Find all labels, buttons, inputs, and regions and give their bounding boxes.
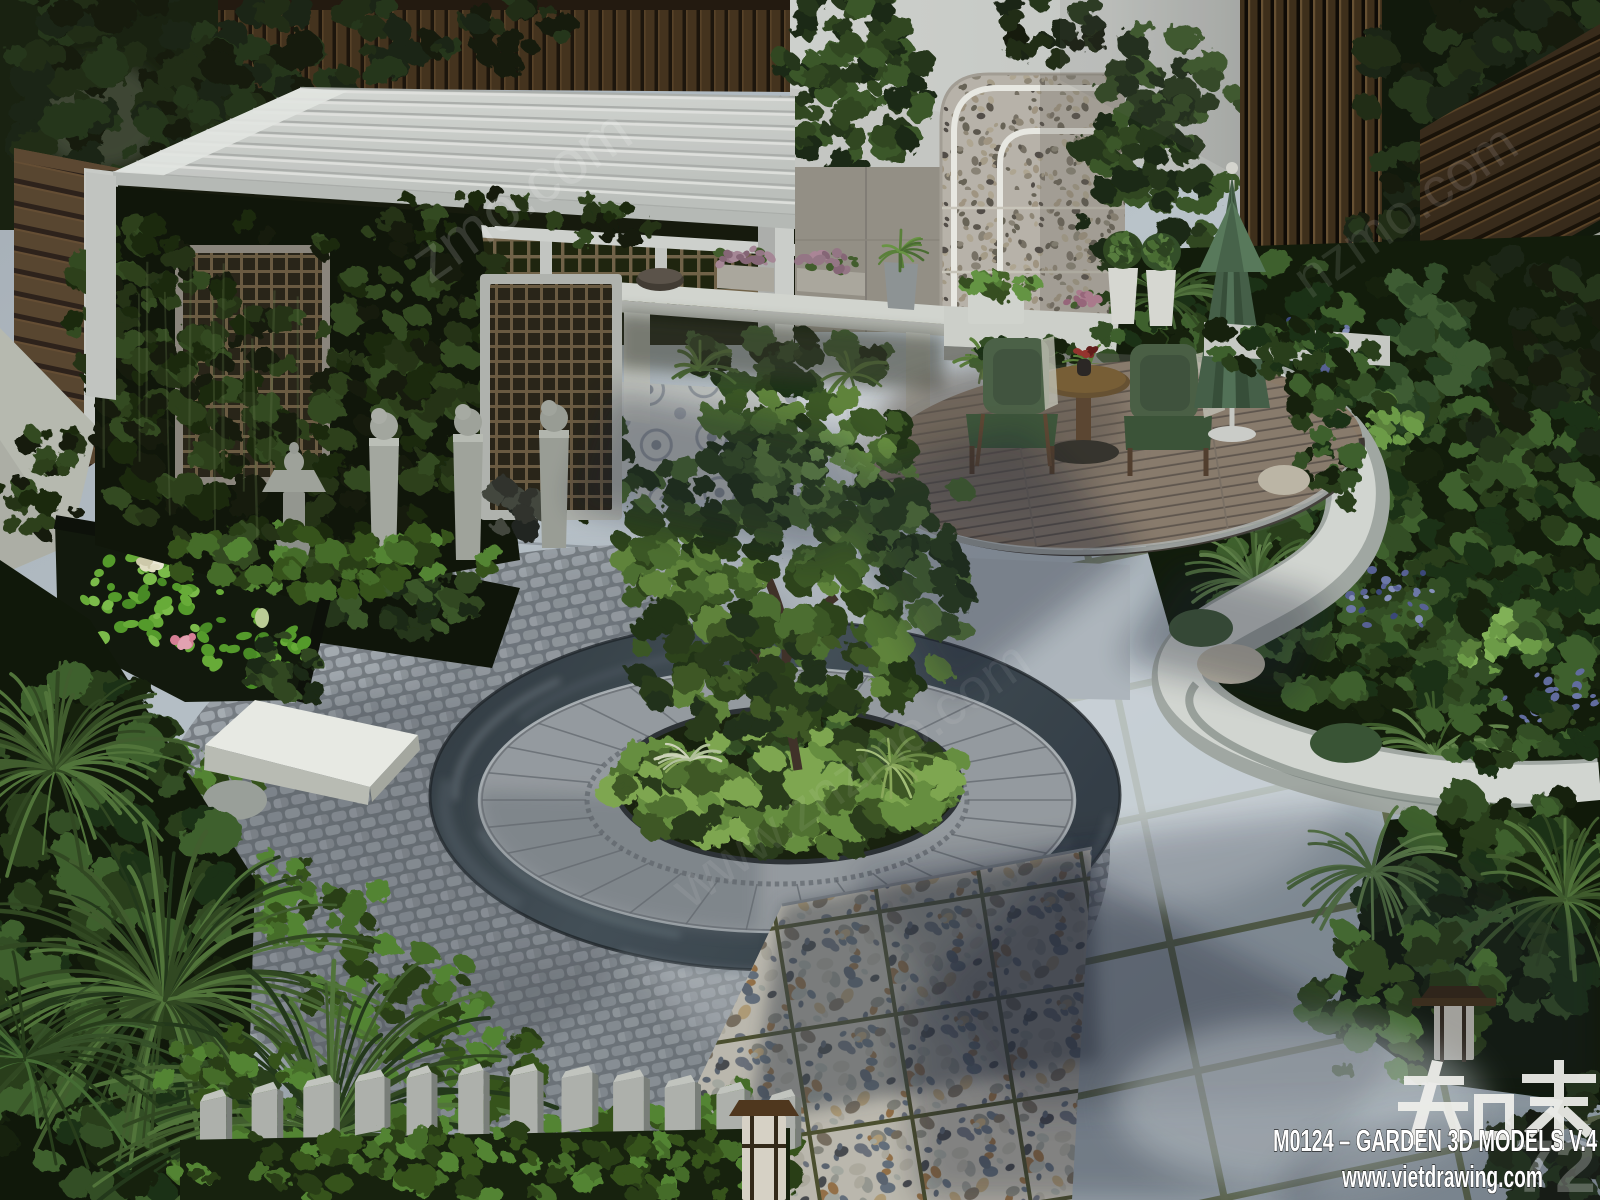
svg-text:M0124 – GARDEN 3D MODELS V.4: M0124 – GARDEN 3D MODELS V.4 [1273, 1123, 1597, 1158]
svg-text:www.vietdrawing.com: www.vietdrawing.com [1341, 1159, 1543, 1194]
